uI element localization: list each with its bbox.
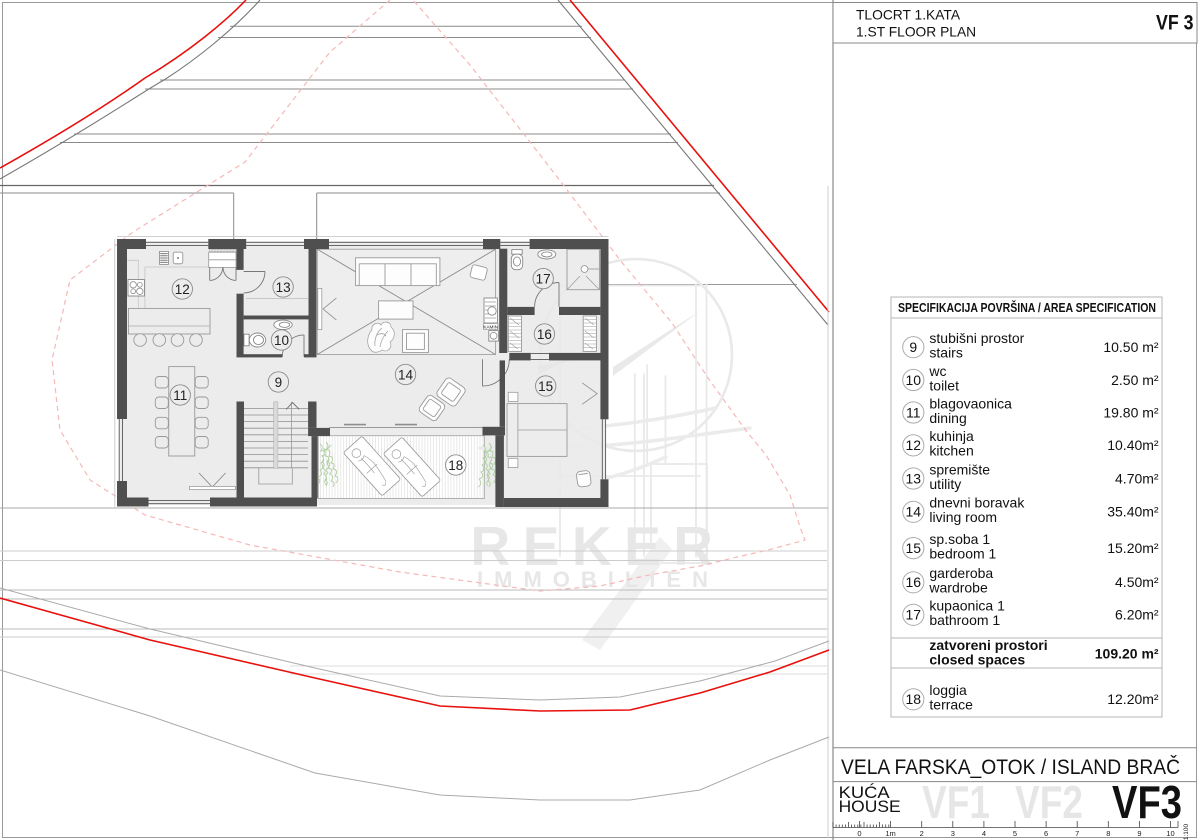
svg-text:6: 6 — [1044, 829, 1048, 838]
svg-text:SPECIFIKACIJA POVRŠINA / AREA: SPECIFIKACIJA POVRŠINA / AREA SPECIFICAT… — [898, 300, 1156, 315]
svg-text:19.80 m²: 19.80 m² — [1103, 404, 1159, 420]
svg-text:1.ST FLOOR PLAN: 1.ST FLOOR PLAN — [856, 25, 976, 40]
svg-text:4.70m²: 4.70m² — [1115, 470, 1159, 486]
svg-text:IMMOBILIEN: IMMOBILIEN — [477, 567, 719, 592]
svg-text:8: 8 — [1106, 829, 1110, 838]
svg-text:11: 11 — [173, 388, 187, 403]
svg-text:1m: 1m — [885, 829, 895, 838]
svg-text:dining: dining — [929, 410, 966, 426]
svg-text:13: 13 — [276, 280, 291, 295]
svg-text:14: 14 — [398, 367, 414, 382]
svg-text:VF3: VF3 — [1112, 776, 1182, 828]
svg-text:7: 7 — [1075, 829, 1079, 838]
svg-text:17: 17 — [536, 271, 551, 286]
svg-text:toilet: toilet — [929, 377, 959, 393]
svg-text:VF 3: VF 3 — [1156, 11, 1194, 35]
svg-text:9: 9 — [275, 375, 283, 390]
svg-text:12: 12 — [906, 437, 922, 453]
svg-text:15: 15 — [538, 379, 553, 394]
svg-text:1:100: 1:100 — [1183, 823, 1190, 840]
svg-text:10.40m²: 10.40m² — [1107, 437, 1159, 453]
svg-text:18: 18 — [448, 458, 463, 473]
svg-text:14: 14 — [906, 504, 922, 520]
svg-text:4.50m²: 4.50m² — [1115, 574, 1159, 590]
svg-text:VF1: VF1 — [922, 776, 990, 828]
svg-text:wardrobe: wardrobe — [928, 580, 988, 596]
svg-text:bathroom 1: bathroom 1 — [929, 612, 1000, 628]
svg-text:18: 18 — [906, 691, 922, 707]
svg-text:VF2: VF2 — [1015, 776, 1083, 828]
svg-text:closed spaces: closed spaces — [929, 652, 1025, 668]
svg-text:utility: utility — [929, 476, 961, 492]
svg-text:living room: living room — [929, 509, 997, 525]
svg-text:10: 10 — [906, 372, 922, 388]
svg-text:terrace: terrace — [929, 697, 973, 713]
svg-text:35.40m²: 35.40m² — [1107, 504, 1159, 520]
svg-text:17: 17 — [906, 607, 922, 623]
svg-text:12.20m²: 12.20m² — [1107, 691, 1159, 707]
svg-text:stairs: stairs — [929, 345, 962, 361]
svg-text:4: 4 — [982, 829, 986, 838]
svg-text:KAMIN: KAMIN — [483, 324, 498, 329]
svg-text:5: 5 — [1013, 829, 1017, 838]
svg-text:13: 13 — [906, 470, 922, 486]
svg-text:15.20m²: 15.20m² — [1107, 540, 1159, 556]
svg-text:9: 9 — [909, 339, 917, 355]
svg-text:10: 10 — [1166, 829, 1174, 838]
svg-text:6.20m²: 6.20m² — [1115, 607, 1159, 623]
svg-text:2: 2 — [920, 829, 924, 838]
svg-text:109.20 m²: 109.20 m² — [1095, 646, 1159, 662]
svg-text:10: 10 — [274, 333, 289, 348]
svg-text:16: 16 — [906, 574, 922, 590]
svg-text:bedroom 1: bedroom 1 — [929, 545, 996, 561]
svg-text:15: 15 — [906, 540, 922, 556]
svg-text:9: 9 — [1137, 829, 1141, 838]
svg-text:kitchen: kitchen — [929, 443, 973, 459]
svg-text:TLOCRT 1.KATA: TLOCRT 1.KATA — [856, 8, 961, 23]
svg-text:16: 16 — [537, 327, 552, 342]
svg-text:10.50 m²: 10.50 m² — [1103, 339, 1159, 355]
svg-text:12: 12 — [175, 282, 190, 297]
svg-text:HOUSE: HOUSE — [839, 797, 901, 816]
svg-text:0: 0 — [857, 829, 861, 838]
svg-text:3: 3 — [951, 829, 955, 838]
svg-text:11: 11 — [906, 404, 921, 420]
svg-text:2.50 m²: 2.50 m² — [1111, 372, 1159, 388]
